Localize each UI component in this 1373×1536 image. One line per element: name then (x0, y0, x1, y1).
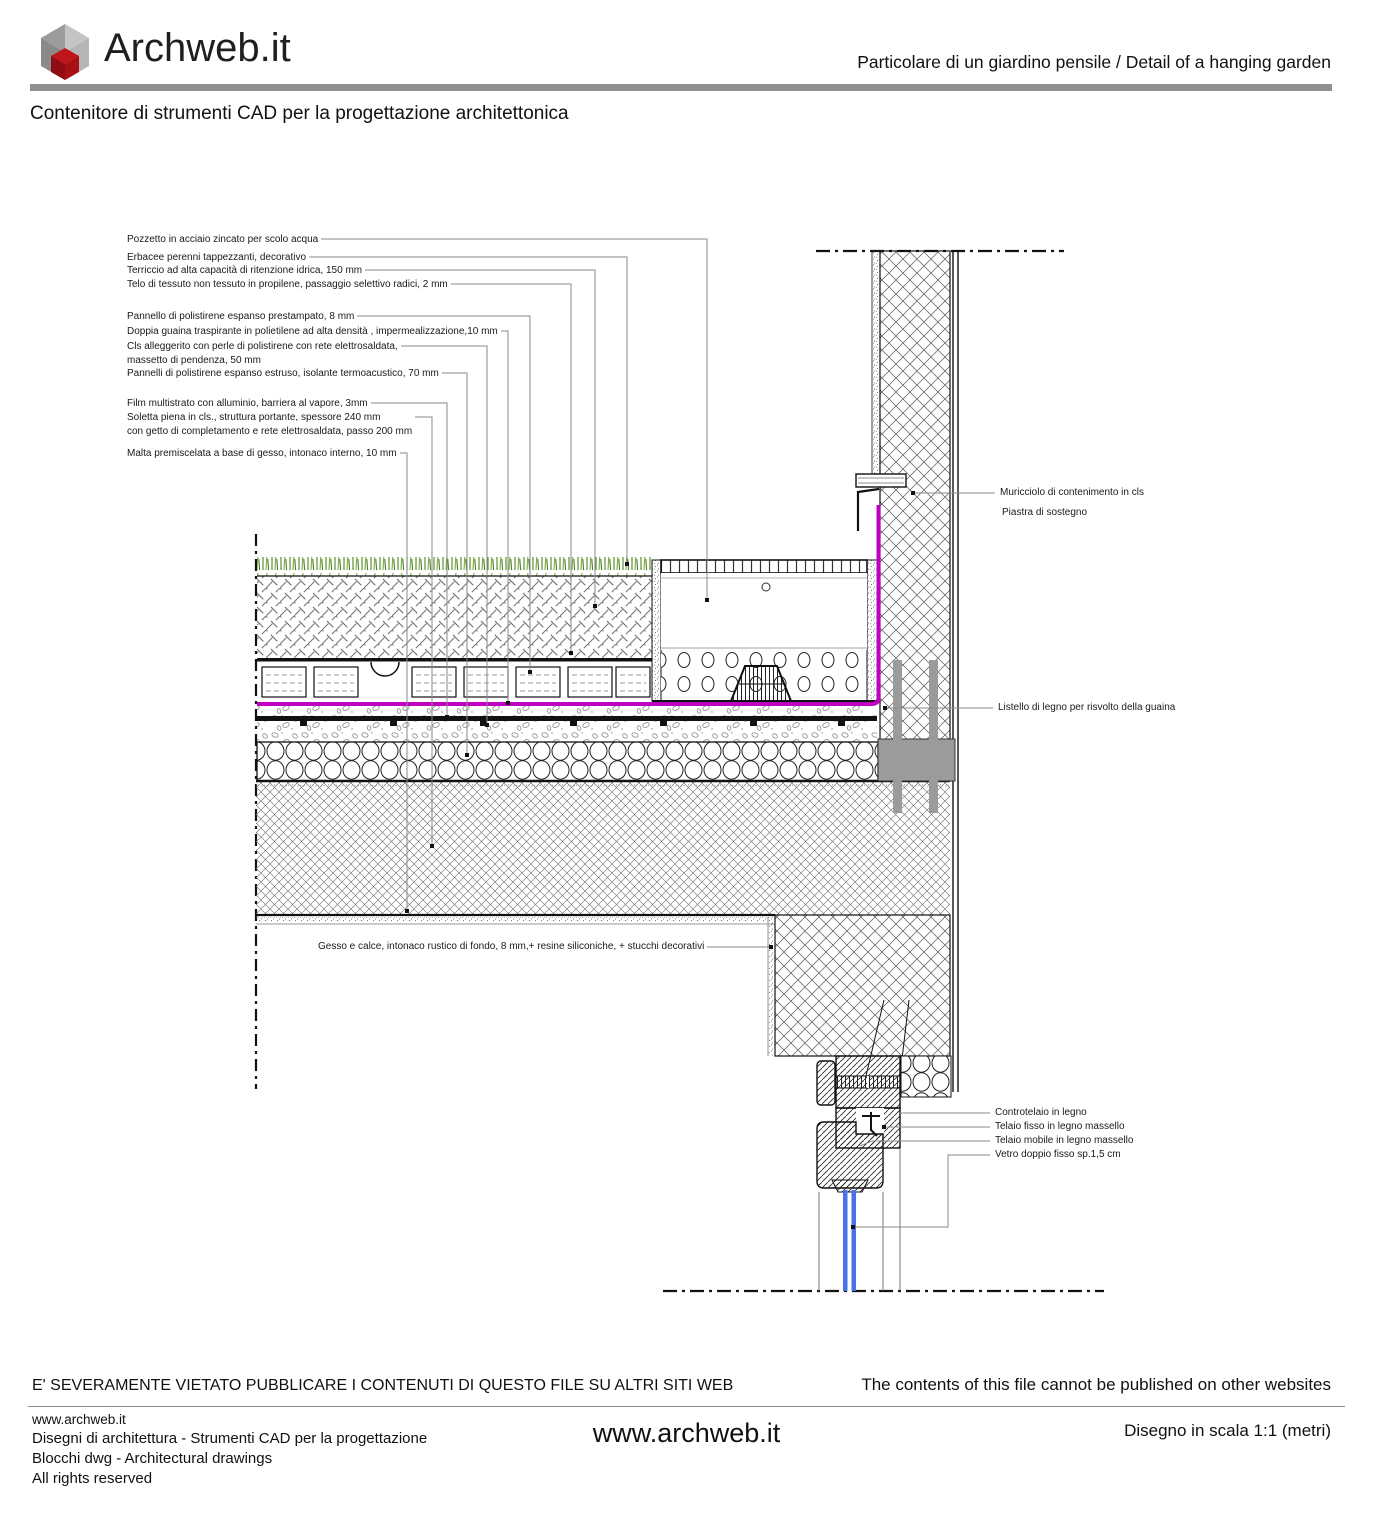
upper-wall (880, 251, 950, 741)
grass-layer (257, 557, 652, 576)
footer-scale-note: Disegno in scala 1:1 (metri) (1124, 1421, 1331, 1441)
footer-site-center: www.archweb.it (593, 1418, 781, 1449)
header-rule (30, 84, 1332, 91)
window-insulation (901, 1056, 951, 1097)
layer-label-malta: Malta premiscelata a base di gesso, into… (127, 447, 400, 461)
footer-line-blocchi: Blocchi dwg - Architectural drawings (32, 1450, 272, 1467)
label-listello: Listello di legno per risvolto della gua… (998, 701, 1175, 715)
insulation-layer (257, 742, 878, 781)
layer-label-terriccio: Terriccio ad alta capacità di ritenzione… (127, 264, 365, 278)
drain-arch (371, 662, 399, 676)
drain-grating (661, 560, 867, 573)
layer-label-cls-alleggerito: Cls alleggerito con perle di polistirene… (127, 340, 401, 367)
layer-label-telo: Telo di tessuto non tessuto in propilene… (127, 278, 451, 292)
glass-pane (843, 1190, 848, 1291)
vapor-film-line (257, 716, 877, 721)
label-telaio-mobile: Telaio mobile in legno massello (995, 1134, 1133, 1148)
support-plate (856, 474, 906, 487)
wall-outer-render (872, 251, 880, 479)
drawing-title: Particolare di un giardino pensile / Det… (857, 52, 1331, 73)
footer-rule (28, 1406, 1345, 1407)
drain-box (652, 560, 877, 701)
steel-dowel (893, 660, 902, 813)
site-tagline: Contenitore di strumenti CAD per la prog… (30, 103, 569, 125)
drainage-layer (262, 667, 650, 697)
label-telaio-fisso: Telaio fisso in legno massello (995, 1120, 1125, 1134)
footer-line-disegni: Disegni di architettura - Strumenti CAD … (32, 1430, 427, 1447)
layer-label-doppia-guaina: Doppia guaina traspirante in polietilene… (127, 325, 501, 339)
glazing-bead (832, 1180, 868, 1192)
metal-flashing (858, 489, 879, 531)
wall-inner-plaster (769, 917, 775, 1056)
layer-label-pozzetto: Pozzetto in acciaio zincato per scolo ac… (127, 233, 321, 247)
footer-site-url: www.archweb.it (32, 1412, 126, 1427)
label-controtelaio: Controtelaio in legno (995, 1106, 1087, 1120)
jamb-trim (817, 1061, 835, 1105)
layer-label-erbacee: Erbacee perenni tappezzanti, decorativo (127, 251, 309, 265)
label-muricciolo: Muricciolo di contenimento in cls (1000, 486, 1144, 500)
concrete-slab (256, 781, 950, 915)
lower-wall (775, 915, 950, 1056)
layer-label-film-multistrato: Film multistrato con alluminio, barriera… (127, 397, 371, 411)
layer-label-pannelli-estruso: Pannelli di polistirene espanso estruso,… (127, 367, 442, 381)
steel-plate-block (878, 739, 955, 781)
page: Archweb.it Particolare di un giardino pe… (0, 0, 1373, 1536)
glass-pane (852, 1190, 857, 1291)
label-vetro-doppio: Vetro doppio fisso sp.1,5 cm (995, 1148, 1121, 1162)
label-gesso-calce: Gesso e calce, intonaco rustico di fondo… (318, 940, 707, 954)
lightweight-concrete-layer (257, 706, 877, 742)
footer-line-rights: All rights reserved (32, 1470, 152, 1487)
archweb-logo (41, 24, 89, 80)
copyright-notice-en: The contents of this file cannot be publ… (861, 1375, 1331, 1395)
layer-label-pannello-prestampato: Pannello di polistirene espanso prestamp… (127, 310, 357, 324)
label-piastra: Piastra di sostegno (1002, 506, 1087, 520)
ceiling-plaster (256, 917, 775, 922)
site-logo-text: Archweb.it (104, 26, 291, 71)
steel-dowel (929, 660, 938, 813)
copyright-notice-it: E' SEVERAMENTE VIETATO PUBBLICARE I CONT… (32, 1377, 733, 1395)
section-drawing (0, 0, 1373, 1536)
layer-label-soletta: Soletta piena in cls., struttura portant… (127, 411, 415, 438)
